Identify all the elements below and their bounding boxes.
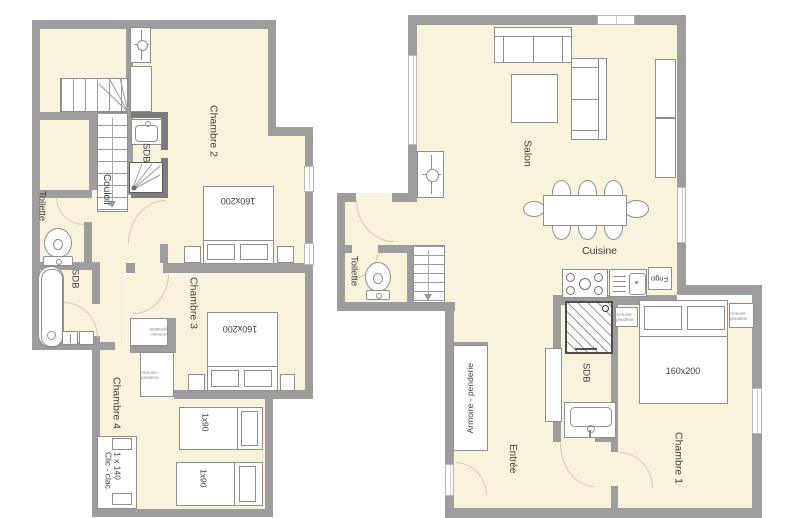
- wall: [32, 20, 276, 29]
- wall: [445, 508, 762, 518]
- room-label-couloir: Couloir: [101, 174, 112, 206]
- toilet-tank-icon: [43, 256, 73, 266]
- wall: [677, 285, 762, 295]
- bed-fold-line: [237, 407, 238, 450]
- chair-icon: [523, 201, 545, 217]
- door-opening: [611, 452, 618, 486]
- floor: [417, 25, 677, 295]
- wall: [677, 15, 686, 187]
- wall: [611, 442, 618, 452]
- wall: [611, 486, 618, 508]
- pillow-icon: [240, 244, 268, 260]
- pillow-icon: [207, 244, 235, 260]
- wall: [752, 434, 762, 518]
- cabinet: [655, 118, 676, 178]
- window: [677, 187, 686, 243]
- pillow-icon: [644, 306, 682, 330]
- entrance-door-opening: [445, 464, 454, 496]
- floor-plan-canvas: 160x200 160x200 Armoire - penderie Armoi…: [0, 0, 800, 518]
- window: [752, 388, 762, 434]
- room-label-sdb-lower: SDB: [69, 269, 79, 289]
- cabinet: [79, 331, 94, 345]
- bed-fold-line: [639, 336, 728, 337]
- wall: [553, 433, 561, 442]
- wall: [553, 295, 561, 350]
- wall: [161, 112, 168, 150]
- wall: [126, 263, 135, 273]
- washbasin-icon: [131, 119, 162, 145]
- armoire-penderie: Armoire - penderie: [130, 318, 168, 346]
- bed-size-label: 1x90: [200, 413, 209, 431]
- door-opening: [352, 245, 378, 253]
- wall: [337, 245, 352, 253]
- bed-size-label: 160x200: [210, 194, 266, 206]
- stair-direction-line: [428, 250, 429, 296]
- window: [304, 166, 314, 192]
- window: [408, 55, 417, 145]
- bed-fold-line: [234, 462, 235, 506]
- bed-size-label: 160x200: [212, 322, 268, 334]
- room-label-chambre4: Chambre 4: [110, 377, 122, 429]
- shower-icon: [565, 301, 613, 354]
- radiator-icon: [130, 27, 151, 63]
- wall: [163, 263, 313, 273]
- bedside-table: [277, 246, 294, 263]
- cabinet: [655, 59, 676, 118]
- wall: [268, 20, 276, 136]
- armoire-penderie: Armoire - penderie: [140, 352, 174, 397]
- bedside-table: Armoire - penderie: [615, 307, 638, 327]
- washbasin-icon: [564, 402, 616, 438]
- room-label-toilette: Toilette: [348, 256, 358, 286]
- armoire-penderie: Armoire - penderie: [453, 345, 488, 451]
- cushion-icon: [112, 493, 132, 505]
- bed-fold-line: [207, 366, 278, 367]
- cushion-icon: [112, 438, 132, 450]
- stair-arrow-icon: [424, 294, 432, 301]
- coffee-table: [511, 74, 558, 123]
- room-label-chambre2: Chambre 2: [207, 105, 219, 157]
- toilet-bowl-icon: [373, 273, 383, 284]
- pillow-icon: [239, 466, 256, 502]
- toilet-bowl-icon: [53, 239, 63, 250]
- shower-icon: [129, 162, 163, 193]
- room-label-chambre3: Chambre 3: [187, 277, 199, 329]
- pillow-icon: [241, 411, 258, 446]
- washbasin-icon: [62, 331, 78, 345]
- fridge: Frigo: [648, 267, 672, 290]
- dining-table: [543, 195, 627, 226]
- stair-direction-line: [112, 118, 113, 203]
- room-label-entree: Entrée: [507, 444, 518, 473]
- wall: [160, 244, 168, 263]
- pillow-icon: [211, 370, 239, 387]
- wall: [174, 390, 313, 399]
- door-panel: [545, 348, 562, 422]
- pillow-icon: [244, 370, 272, 387]
- pillow-icon: [687, 306, 725, 330]
- clic-clac-label: Clic - clac 1 x 140: [103, 452, 122, 489]
- room-label-sdb: SDB: [580, 363, 590, 383]
- wall: [408, 15, 685, 25]
- bed-size-label: 160x200: [655, 366, 711, 378]
- bed-fold-line: [203, 240, 274, 241]
- room-label-salon: Salon: [521, 140, 533, 167]
- bedside-table: Armoire - penderie: [729, 303, 754, 328]
- radiator-icon: [417, 151, 444, 198]
- staircase-winder-icon: [97, 78, 128, 112]
- room-label-sdb-upper: SDB: [140, 143, 150, 163]
- floor: [455, 295, 553, 310]
- chair-icon: [624, 200, 649, 218]
- bedside-table: [280, 374, 295, 391]
- room-label-chambre1: Chambre 1: [672, 432, 684, 484]
- fridge-label: Frigo: [651, 274, 668, 282]
- wall: [92, 509, 273, 517]
- stove-icon: [562, 269, 608, 298]
- bathtub-icon: [38, 266, 64, 348]
- room-label-cuisine: Cuisine: [582, 246, 617, 258]
- room-label-toilette: Toilette: [36, 191, 46, 221]
- window: [597, 15, 635, 25]
- window: [304, 243, 314, 265]
- bedside-table: [184, 246, 201, 263]
- sofa: [571, 58, 607, 140]
- wall: [265, 397, 273, 517]
- bedside-table: [188, 374, 205, 391]
- sofa: [494, 27, 572, 63]
- wall: [408, 15, 417, 57]
- wall: [677, 243, 686, 295]
- sink-icon: [609, 269, 647, 297]
- wall: [89, 112, 97, 190]
- wall: [408, 143, 417, 200]
- wall: [92, 262, 100, 304]
- toilet-tank-icon: [366, 290, 390, 300]
- cabinet: [130, 66, 152, 112]
- wall: [337, 302, 455, 311]
- armoire-label: Armoire - penderie: [466, 363, 475, 433]
- bed-size-label: 1x90: [198, 469, 207, 487]
- wall: [378, 245, 417, 253]
- wall: [392, 193, 417, 202]
